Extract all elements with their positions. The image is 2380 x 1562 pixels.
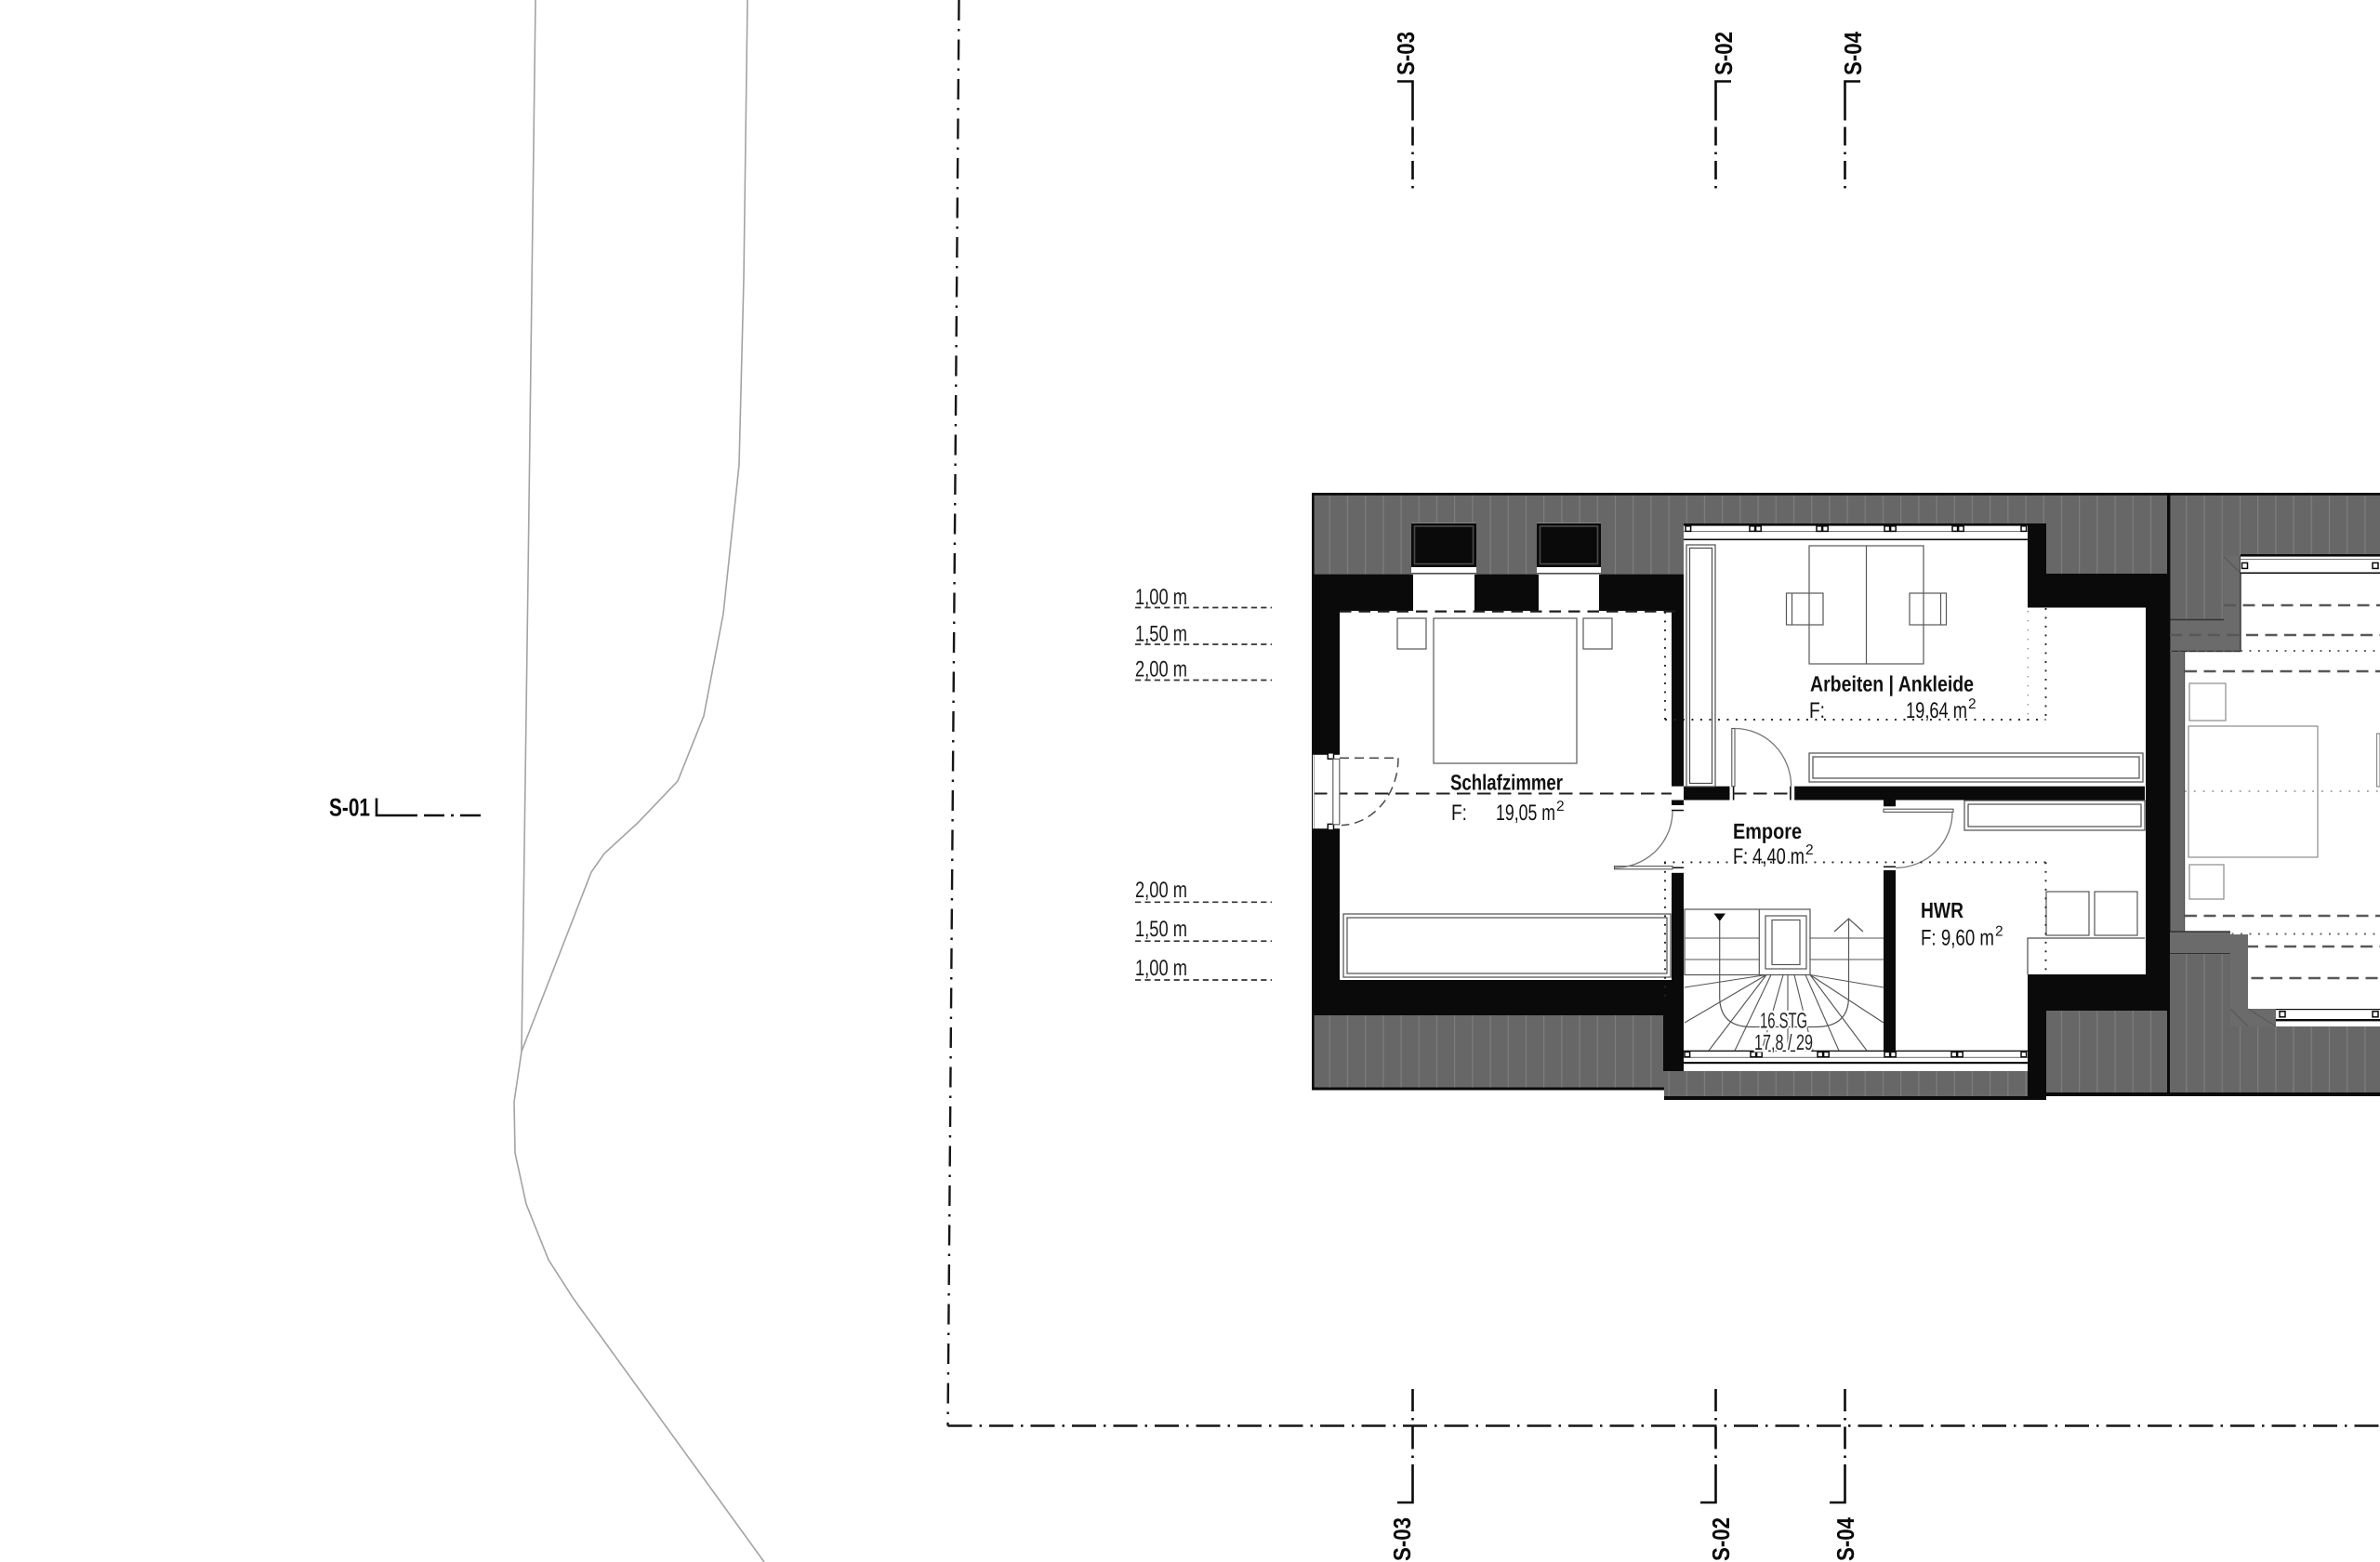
- svg-text:2,00 m: 2,00 m: [1135, 657, 1187, 682]
- svg-text:19,05 m: 19,05 m: [1496, 801, 1555, 826]
- svg-text:S-04: S-04: [1831, 1517, 1859, 1561]
- svg-text:1,50 m: 1,50 m: [1135, 917, 1187, 942]
- svg-text:2,00 m: 2,00 m: [1135, 878, 1187, 903]
- svg-text:F: 9,60 m: F: 9,60 m: [1921, 926, 1994, 951]
- svg-text:S-02: S-02: [1710, 32, 1738, 75]
- svg-text:F:: F:: [1809, 698, 1825, 723]
- svg-text:S-03: S-03: [1392, 32, 1420, 75]
- svg-text:17,8 / 29: 17,8 / 29: [1754, 1030, 1813, 1054]
- svg-text:16 STG: 16 STG: [1760, 1009, 1807, 1033]
- svg-text:2: 2: [1556, 799, 1565, 814]
- svg-text:2: 2: [1805, 842, 1814, 858]
- svg-text:2: 2: [1995, 924, 2003, 940]
- svg-text:S-04: S-04: [1839, 32, 1867, 75]
- svg-text:2: 2: [1968, 696, 1977, 712]
- svg-text:19,64 m: 19,64 m: [1906, 698, 1967, 723]
- svg-text:F: 4,40 m: F: 4,40 m: [1733, 844, 1805, 869]
- svg-text:S-03: S-03: [1388, 1517, 1416, 1561]
- svg-text:Schlafzimmer: Schlafzimmer: [1450, 770, 1563, 794]
- svg-text:Empore: Empore: [1733, 819, 1802, 843]
- svg-text:HWR: HWR: [1921, 898, 1963, 922]
- svg-text:S-02: S-02: [1707, 1517, 1735, 1561]
- svg-text:1,00 m: 1,00 m: [1135, 956, 1187, 981]
- svg-text:1,00 m: 1,00 m: [1135, 585, 1187, 610]
- svg-text:S-01: S-01: [329, 794, 370, 822]
- svg-text:Arbeiten | Ankleide: Arbeiten | Ankleide: [1810, 672, 1974, 697]
- svg-text:1,50 m: 1,50 m: [1135, 622, 1187, 647]
- svg-text:F:: F:: [1451, 801, 1467, 826]
